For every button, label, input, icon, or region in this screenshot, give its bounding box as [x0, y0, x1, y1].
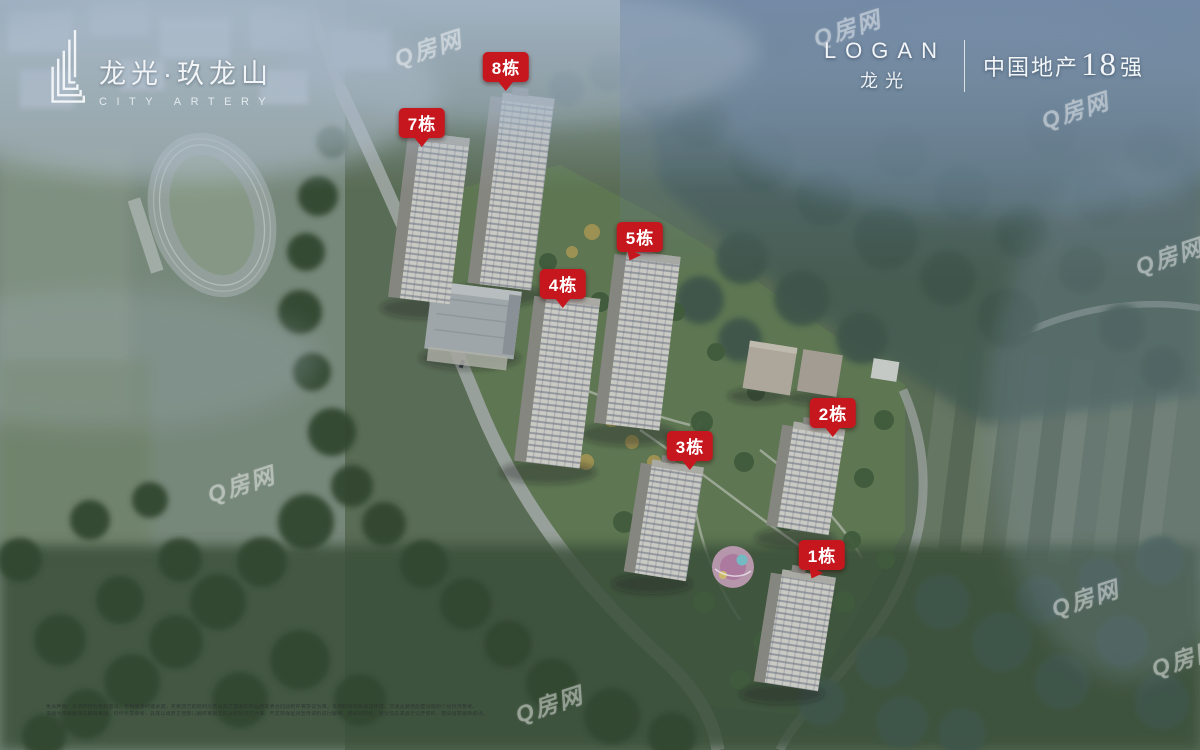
label-pointer [555, 298, 571, 308]
developer-logo: LOGAN 龙光 [824, 38, 946, 93]
building-label-2: 2栋 [810, 398, 856, 428]
project-name-cn: 龙光·玖龙山 [99, 52, 275, 91]
label-pointer [414, 137, 430, 147]
building-logo-icon [47, 26, 87, 110]
building-label-5: 5栋 [617, 222, 663, 252]
label-pointer [825, 427, 841, 437]
building-label-4: 4栋 [540, 269, 586, 299]
developer-rank: 中国地产 18 强 [983, 47, 1144, 84]
label-pointer [498, 81, 514, 91]
divider-line [964, 40, 965, 92]
disclaimer: 免责声明：本资料仅为要约邀请，不构成要约或承诺，买卖双方的权利义务以双方签署的商… [46, 704, 486, 718]
building-label-8: 8栋 [483, 52, 529, 82]
developer-badge: LOGAN 龙光 中国地产 18 强 [824, 38, 1144, 93]
label-pointer [682, 460, 698, 470]
rank-number: 18 [1081, 47, 1118, 84]
building-label-7: 7栋 [399, 108, 445, 138]
project-logo: 龙光·玖龙山 CITY ARTERY [47, 26, 275, 110]
developer-name-cn: 龙光 [824, 67, 946, 93]
rank-prefix: 中国地产 [983, 50, 1079, 82]
real-estate-aerial-poster: Q房网Q房网Q房网Q房网Q房网Q房网Q房网Q房网 龙光·玖龙山 CITY ART… [0, 0, 1200, 750]
disclaimer-line-2: 本图为项目整体鸟瞰效果图，仅作示意参考，具体以政府主管部门最终审批文件及实际交付… [46, 711, 486, 718]
aerial-scene [0, 0, 1200, 750]
rank-suffix: 强 [1120, 50, 1144, 82]
developer-name-en: LOGAN [824, 38, 946, 64]
building-label-1: 1栋 [799, 540, 845, 570]
building-label-3: 3栋 [667, 431, 713, 461]
disclaimer-line-1: 免责声明：本资料仅为要约邀请，不构成要约或承诺，买卖双方的权利义务以双方签署的商… [46, 704, 486, 711]
project-name-en: CITY ARTERY [99, 96, 275, 108]
